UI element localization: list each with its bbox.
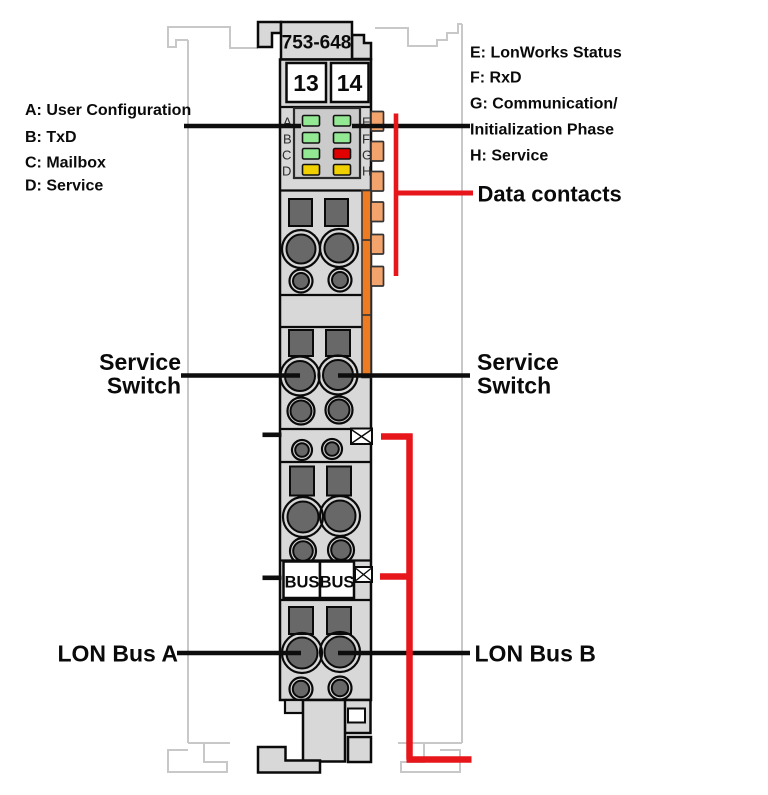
- wire-slot: [289, 607, 313, 634]
- led-c-indicator: [303, 149, 320, 160]
- data-contact-tab: [371, 202, 384, 222]
- wire-slot: [289, 330, 313, 356]
- wire-slot: [326, 330, 350, 356]
- wire-slot: [290, 467, 314, 496]
- lon-bus-a-label: LON Bus A: [57, 641, 178, 667]
- led-block: A B C D E F G H: [282, 108, 372, 179]
- foot-latch-notch: [348, 709, 365, 723]
- release-opening: [291, 401, 312, 422]
- part-number-label: 753-648: [282, 33, 352, 54]
- bus-label-left: BUS: [285, 574, 320, 592]
- wago-753-648-diagram: 753-648 13 14 A B C D E F G H: [0, 0, 768, 795]
- legend-left-a: A: User Configuration: [25, 102, 191, 119]
- cap-left-hook: [258, 22, 281, 47]
- module-cap: 753-648: [258, 22, 371, 60]
- led-a-indicator: [303, 116, 320, 127]
- terminal-13-label: 13: [293, 70, 319, 96]
- legend-right-e: E: LonWorks Status: [470, 45, 622, 62]
- ghost-outline-top-left: [168, 27, 258, 48]
- wire-slot: [327, 607, 351, 634]
- wire-slot: [325, 199, 348, 226]
- legend-right-g: G: Communication/: [470, 96, 618, 113]
- led-letter-h: H: [362, 164, 371, 179]
- legend-right-h: H: Service: [470, 148, 548, 165]
- data-contact-tab: [371, 142, 384, 162]
- led-f-indicator: [334, 133, 351, 144]
- led-g-indicator: [334, 149, 351, 160]
- led-b-indicator: [303, 133, 320, 144]
- terminal-14-label: 14: [337, 70, 363, 96]
- orange-strip: [362, 191, 371, 378]
- clamp-opening: [325, 501, 356, 532]
- release-opening: [293, 681, 309, 697]
- red-brackets: [380, 114, 473, 760]
- clamp-opening: [325, 234, 354, 263]
- led-d-indicator: [303, 165, 320, 176]
- legend-left-b: B: TxD: [25, 129, 77, 146]
- data-contact-tab: [371, 172, 384, 192]
- foot-center-block: [303, 700, 345, 762]
- small-opening: [295, 443, 309, 457]
- foot-step: [285, 700, 303, 713]
- led-h-indicator: [334, 165, 351, 176]
- service-switch-label-right-line2: Switch: [477, 373, 551, 399]
- diagram-canvas: 753-648 13 14 A B C D E F G H: [0, 0, 768, 795]
- small-opening: [325, 442, 339, 456]
- release-opening: [332, 272, 348, 288]
- wire-slot: [289, 199, 312, 226]
- service-switch-label-left-line2: Switch: [107, 373, 181, 399]
- clamp-opening: [287, 235, 316, 264]
- release-opening: [293, 541, 313, 561]
- legend-left-d: D: Service: [25, 178, 103, 195]
- led-letter-f: F: [362, 132, 370, 147]
- led-letter-d: D: [282, 164, 291, 179]
- wire-slot: [327, 467, 351, 496]
- left-tick-mark: [263, 433, 282, 438]
- left-tick-mark: [263, 576, 282, 581]
- release-opening: [332, 680, 348, 696]
- lon-bus-b-label: LON Bus B: [475, 641, 596, 667]
- service-switch-label-left-line1: Service: [99, 349, 181, 375]
- service-switch-label-right-line1: Service: [477, 349, 559, 375]
- foot-hook-right: [348, 737, 371, 762]
- data-contacts-label: Data contacts: [478, 182, 622, 207]
- led-e-indicator: [334, 116, 351, 127]
- legend-right-f: F: RxD: [470, 70, 522, 87]
- led-letter-c: C: [282, 148, 291, 163]
- bus-label-right: BUS: [320, 574, 355, 592]
- mounting-foot: [258, 700, 371, 773]
- ghost-outline-top-right: [375, 24, 462, 46]
- ghost-outline-bottom-left: [168, 743, 230, 772]
- clamp-opening: [288, 502, 319, 533]
- release-opening: [329, 400, 350, 421]
- data-contact-tab: [371, 267, 384, 287]
- bus-label-row: BUS BUS: [284, 562, 355, 599]
- release-opening: [293, 273, 309, 289]
- release-opening: [331, 540, 351, 560]
- legend-right-g2: Initialization Phase: [470, 122, 614, 139]
- legend-left-c: C: Mailbox: [25, 155, 106, 172]
- data-contact-tab: [371, 235, 384, 255]
- led-letter-b: B: [283, 132, 292, 147]
- cap-right-hook: [352, 35, 371, 59]
